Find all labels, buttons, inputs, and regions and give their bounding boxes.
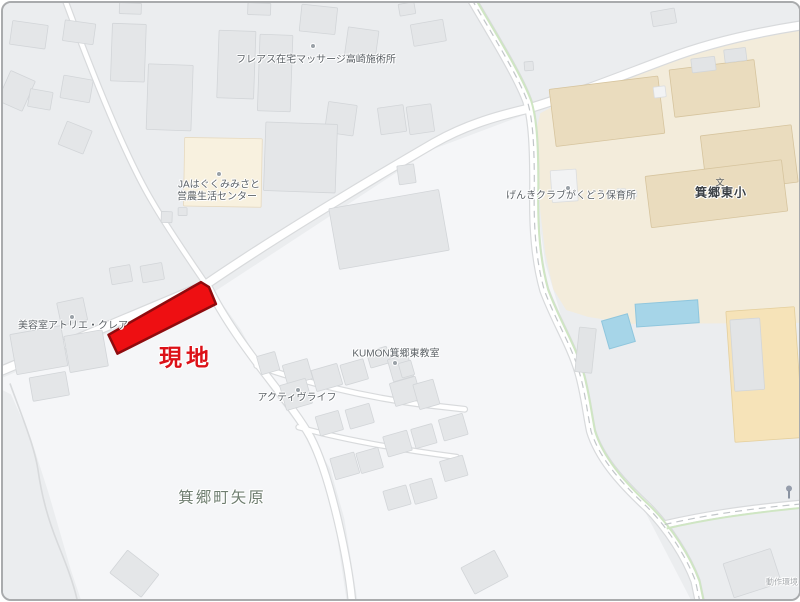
building <box>524 61 534 71</box>
building <box>109 265 133 285</box>
building <box>57 297 88 325</box>
swimming-pool <box>635 300 699 327</box>
building <box>178 208 187 216</box>
building <box>248 3 271 15</box>
building <box>377 105 406 135</box>
small-building <box>617 189 626 196</box>
small-building <box>653 86 666 98</box>
roof-building <box>724 47 747 62</box>
roof-building <box>730 318 765 391</box>
ja-center-building <box>183 137 262 207</box>
building <box>146 64 193 131</box>
building <box>64 330 109 373</box>
building <box>140 262 164 282</box>
building <box>161 211 172 222</box>
small-building <box>629 191 637 197</box>
roof-building <box>691 56 716 73</box>
building <box>299 4 337 34</box>
building <box>264 122 338 193</box>
building <box>217 30 256 99</box>
building <box>344 27 379 60</box>
building <box>27 89 53 111</box>
building <box>119 3 141 14</box>
building <box>257 34 292 112</box>
building <box>110 23 146 82</box>
building <box>60 75 93 103</box>
building <box>397 164 416 185</box>
building <box>10 326 68 375</box>
building <box>406 104 435 135</box>
small-building <box>550 169 578 203</box>
map-canvas[interactable] <box>3 3 799 599</box>
building <box>398 3 416 16</box>
map-frame: フレアス在宅マッサージ高崎施術所JAはぐくみみさと営農生活センターげんきクラブが… <box>1 1 800 601</box>
building <box>9 20 48 49</box>
building <box>62 20 95 45</box>
